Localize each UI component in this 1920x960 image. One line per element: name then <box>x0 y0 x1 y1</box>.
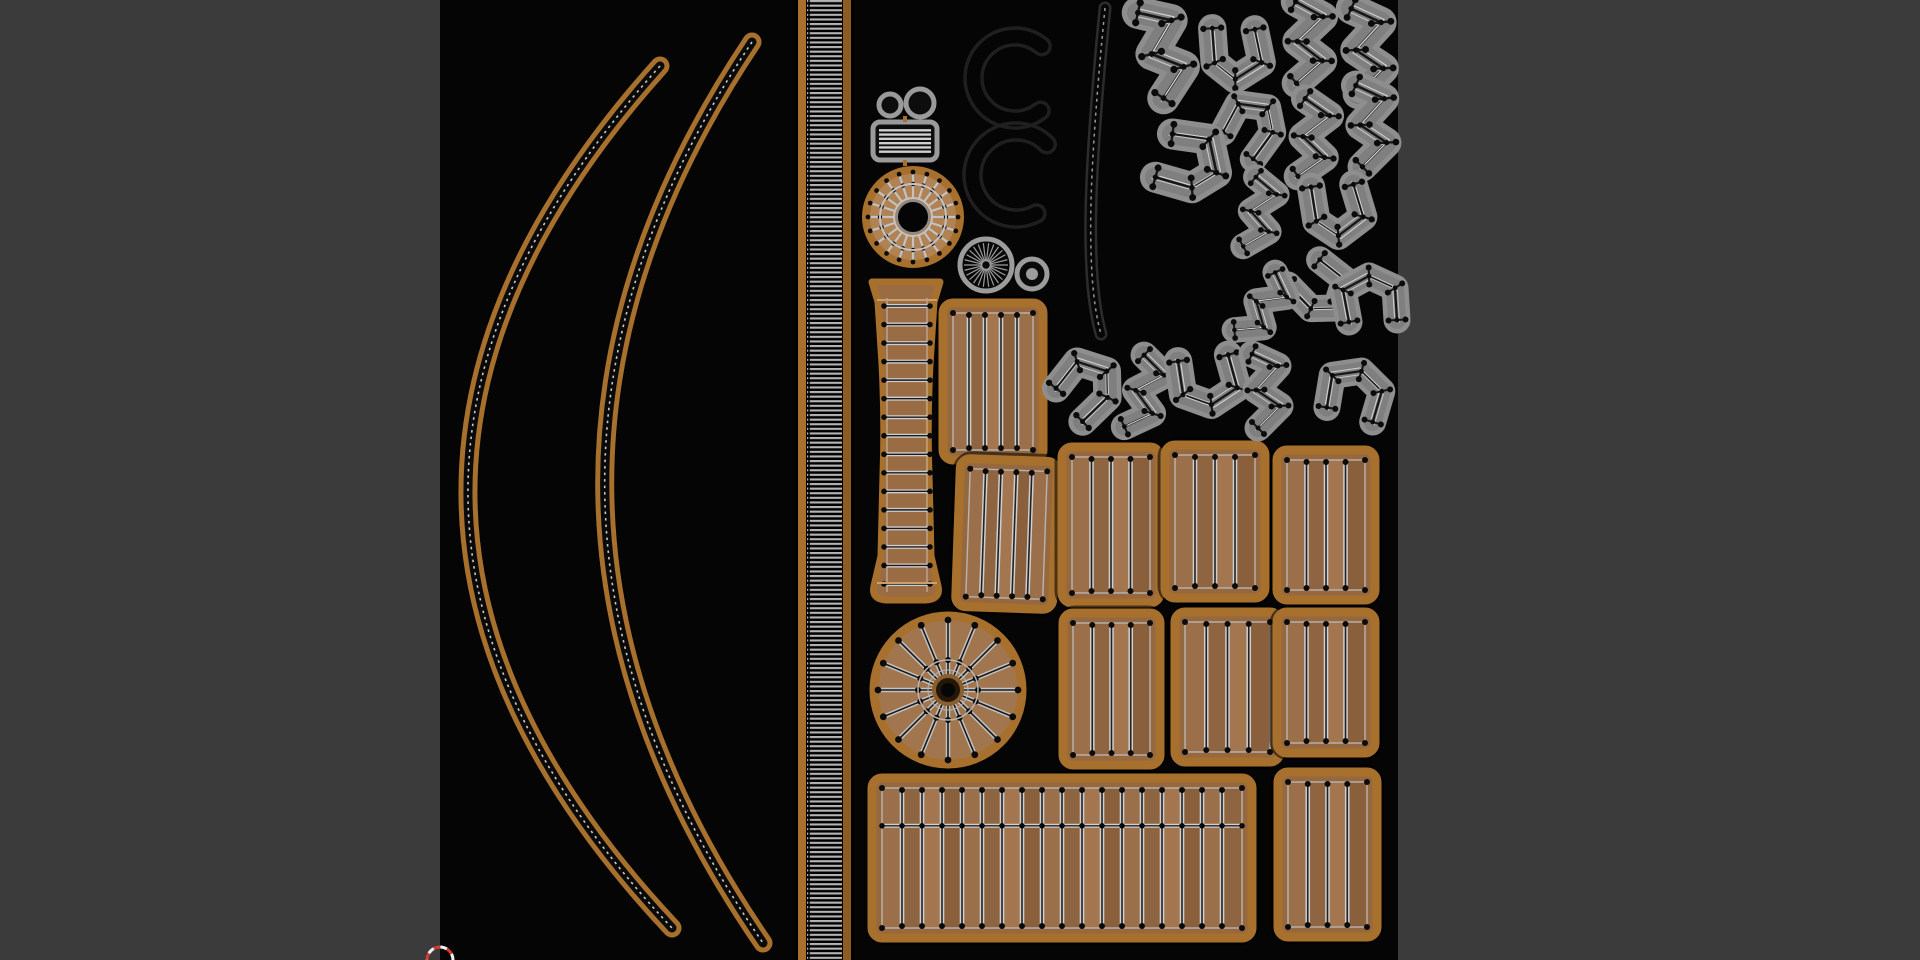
uv-island-small-circle-2[interactable] <box>906 89 934 117</box>
uv-island-plank-rect-8[interactable] <box>1277 612 1375 753</box>
uv-island-louver-rect[interactable] <box>873 116 937 166</box>
uv-island-plank-rect-2[interactable] <box>955 458 1057 609</box>
uv-island-plank-rect-6[interactable] <box>1063 613 1160 765</box>
uv-island-small-ring[interactable] <box>1017 259 1047 289</box>
uv-island-small-circle-1[interactable] <box>879 94 901 116</box>
uv-island-plank-rect-7[interactable] <box>1175 612 1280 762</box>
uv-island-plank-rect-4[interactable] <box>1165 445 1265 598</box>
uv-island-torus-wheel[interactable] <box>866 170 961 265</box>
uv-island-plank-rect-3[interactable] <box>1062 447 1160 603</box>
uv-island-plank-rect-5[interactable] <box>1277 450 1375 600</box>
uv-island-plank-rect-1[interactable] <box>943 303 1043 460</box>
uv-island-plank-rect-9[interactable] <box>1278 772 1377 937</box>
uv-island-starburst-wheel[interactable] <box>960 239 1012 291</box>
uv-editor-viewport[interactable] <box>0 0 1920 960</box>
uv-island-ladder-strip[interactable] <box>795 0 854 960</box>
uv-canvas-svg[interactable] <box>0 0 1920 960</box>
uv-island-big-wheel[interactable] <box>874 616 1022 764</box>
uv-island-mast-column[interactable] <box>872 282 940 600</box>
uv-island-plank-rect-10[interactable] <box>872 778 1252 938</box>
